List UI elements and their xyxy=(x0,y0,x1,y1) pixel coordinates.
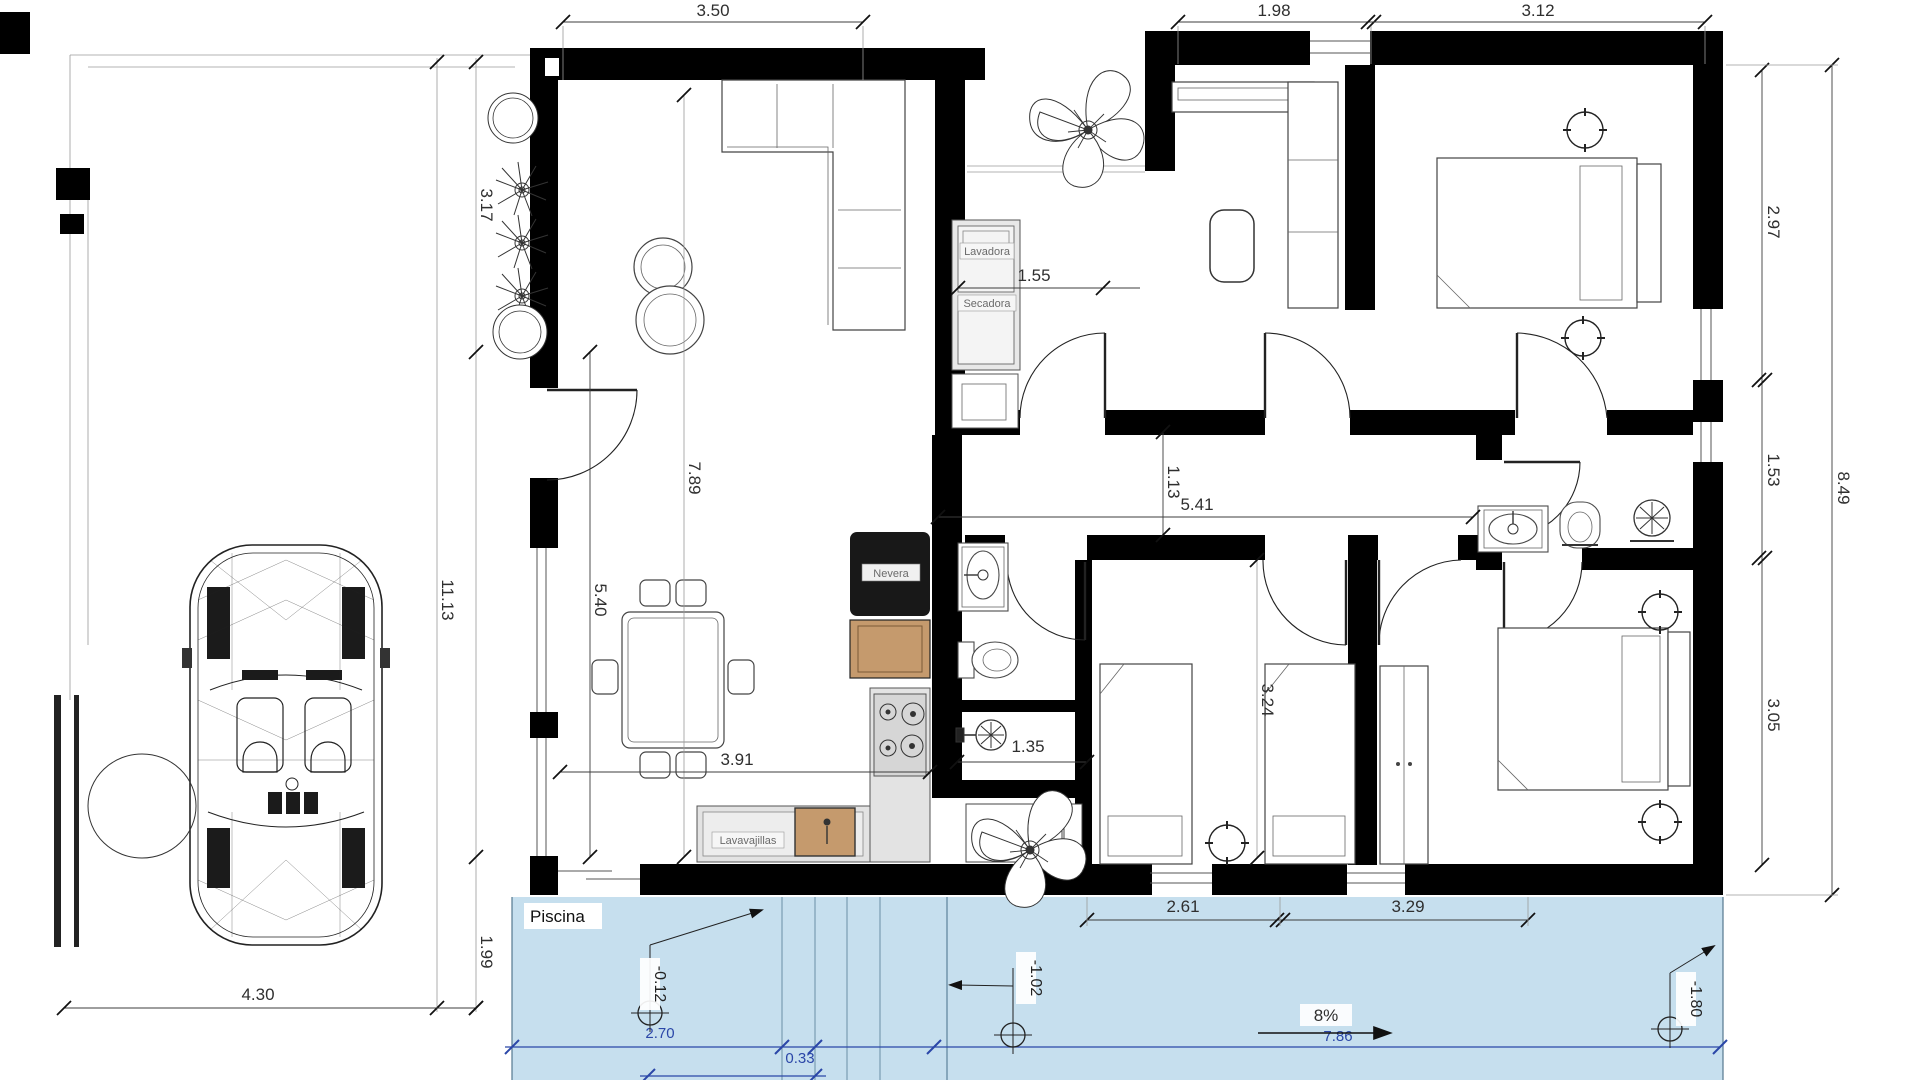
sofa xyxy=(722,80,905,330)
car xyxy=(182,545,390,945)
wood-cabinet xyxy=(850,620,930,678)
dim-top-bedroom: 3.12 xyxy=(1521,1,1554,20)
shower-head xyxy=(1630,500,1674,541)
bedroom-mid-b xyxy=(1265,664,1428,864)
dining-set xyxy=(592,580,754,778)
sink xyxy=(958,543,1008,611)
dim-hall-width: 1.13 xyxy=(1164,465,1183,498)
side-tables xyxy=(634,238,704,354)
dim-left-pool-gap: 1.99 xyxy=(477,935,496,968)
piscina-label: Piscina xyxy=(530,907,585,926)
dim-pool-step-width: 0.33 xyxy=(785,1050,814,1067)
bed-double-bottom xyxy=(1498,628,1668,790)
fridge-label: Nevera xyxy=(873,568,909,580)
dressing-room xyxy=(1172,82,1338,308)
shower-head xyxy=(956,720,1006,750)
dryer-label: Secadora xyxy=(963,298,1011,310)
sink xyxy=(1478,506,1548,552)
ceiling-fan xyxy=(1563,108,1607,152)
bed-single-b xyxy=(1265,664,1355,864)
elevation-terrace-value: -0.12 xyxy=(651,966,668,1003)
round-terrace xyxy=(88,754,196,858)
toilet xyxy=(1560,502,1600,548)
ceiling-fan xyxy=(1638,800,1682,844)
floor-plan-drawing: 3.50 1.98 3.12 2.97 1.53 3.05 8.49 3.17 … xyxy=(0,0,1920,1080)
dim-right-total: 8.49 xyxy=(1834,471,1853,504)
slope-label: 8% xyxy=(1314,1006,1339,1025)
dim-right-bedroom-bottom: 3.05 xyxy=(1764,698,1783,731)
pool-water xyxy=(512,897,1723,1080)
dishwasher-label: Lavavajillas xyxy=(720,835,777,847)
ottoman xyxy=(1210,210,1254,282)
dim-pool-length: 7.86 xyxy=(1323,1028,1352,1045)
bedroom-bottom xyxy=(1498,590,1690,844)
bathroom-main xyxy=(1478,500,1674,552)
dim-laundry-width: 1.55 xyxy=(1017,266,1050,285)
elevation-pool-mid-value: -1.02 xyxy=(1027,960,1044,997)
dim-kitchen-width: 3.91 xyxy=(720,750,753,769)
cooktop xyxy=(874,694,926,776)
dim-top-living: 3.50 xyxy=(696,1,729,20)
washer-label: Lavadora xyxy=(964,246,1011,258)
dim-bath-small-width: 1.35 xyxy=(1011,737,1044,756)
dim-living-depth: 7.89 xyxy=(685,461,704,494)
bed-double-top xyxy=(1437,158,1637,308)
ceiling-fan xyxy=(1205,821,1249,865)
dim-right-bedroom-top: 2.97 xyxy=(1764,205,1783,238)
elevation-pool-deep-value: -1.80 xyxy=(1687,981,1704,1018)
dim-bedroom-a-width: 2.61 xyxy=(1166,897,1199,916)
sink-cabinet xyxy=(795,808,855,856)
ceiling-fan xyxy=(1561,316,1605,360)
kitchen xyxy=(697,532,930,862)
plant-entry xyxy=(1030,71,1144,188)
dim-hall-length: 5.41 xyxy=(1180,495,1213,514)
pool xyxy=(512,897,1723,1080)
dim-bedrooms-depth: 3.24 xyxy=(1258,683,1277,716)
bed-single-a xyxy=(1100,664,1192,864)
dim-left-lower: 5.40 xyxy=(591,583,610,616)
dim-left-upper: 3.17 xyxy=(477,188,496,221)
dim-right-bath: 1.53 xyxy=(1764,453,1783,486)
dim-top-dressing: 1.98 xyxy=(1257,1,1290,20)
floor-plan-canvas: 3.50 1.98 3.12 2.97 1.53 3.05 8.49 3.17 … xyxy=(0,0,1920,1080)
bedroom-top xyxy=(1437,108,1661,360)
dim-left-total: 11.13 xyxy=(438,579,457,620)
dim-bedroom-b-width: 3.29 xyxy=(1391,897,1424,916)
bedroom-mid-a xyxy=(1100,664,1249,865)
bathroom-small xyxy=(955,543,1077,750)
toilet xyxy=(958,642,1018,678)
dim-bottom-left: 4.30 xyxy=(241,985,274,1004)
